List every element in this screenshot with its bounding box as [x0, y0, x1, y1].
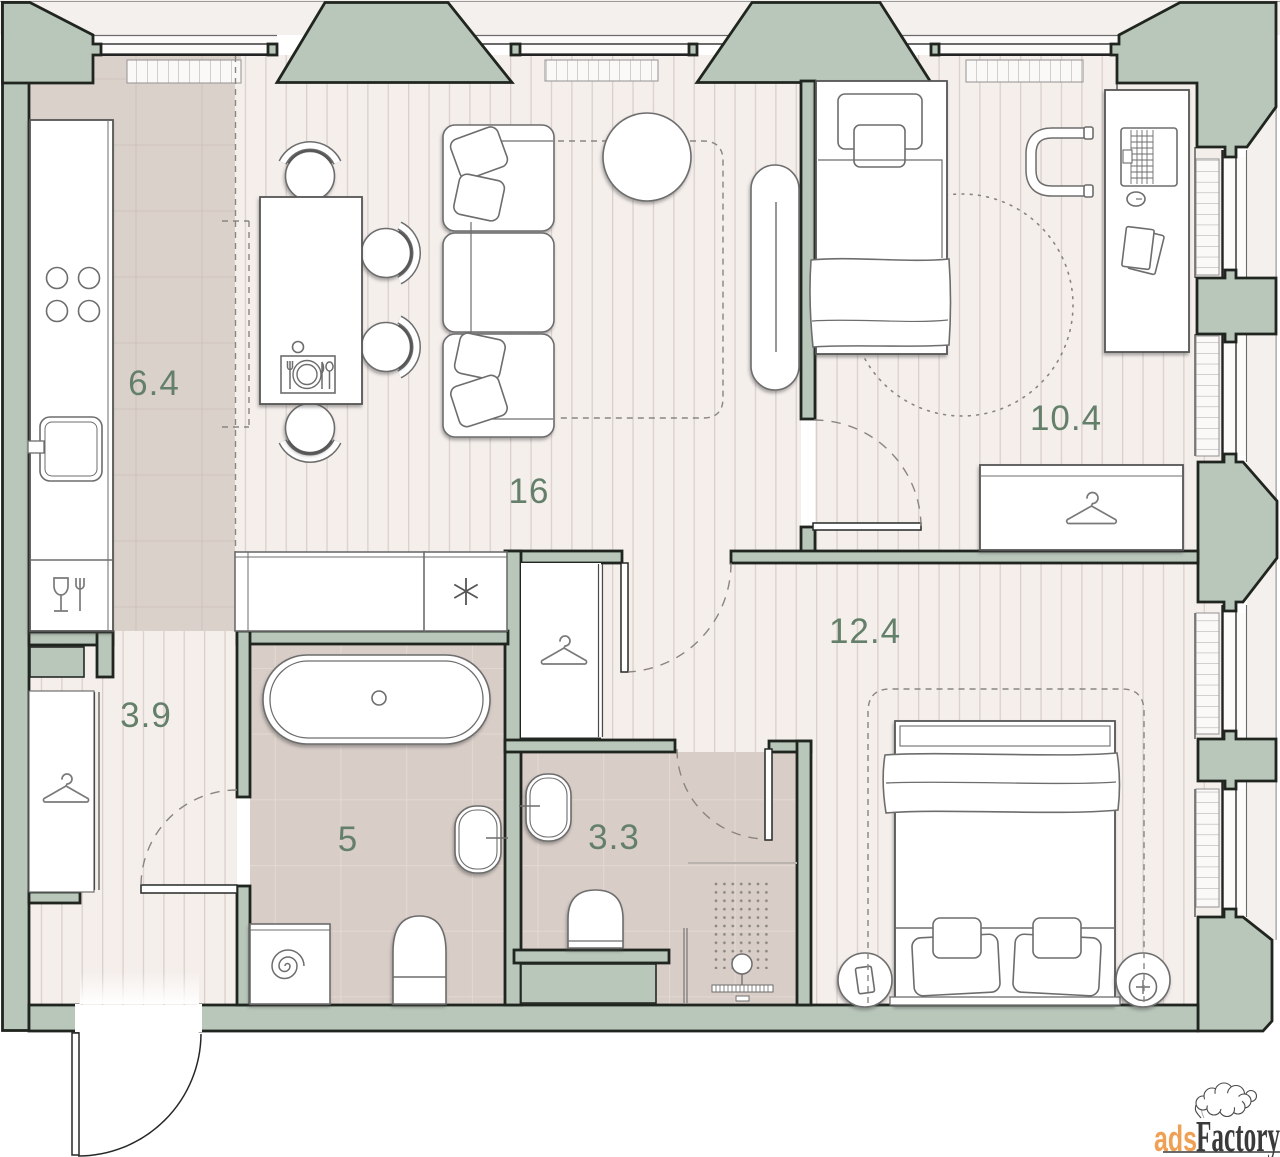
- svg-text:6.4: 6.4: [128, 364, 180, 403]
- svg-text:12.4: 12.4: [829, 612, 901, 651]
- svg-text:3.3: 3.3: [588, 818, 640, 857]
- svg-text:ads: ads: [1154, 1118, 1197, 1157]
- svg-text:5: 5: [338, 820, 358, 859]
- svg-text:Factory: Factory: [1196, 1112, 1280, 1157]
- svg-text:3.9: 3.9: [120, 696, 172, 735]
- svg-text:10.4: 10.4: [1030, 399, 1102, 438]
- svg-text:16: 16: [509, 472, 550, 511]
